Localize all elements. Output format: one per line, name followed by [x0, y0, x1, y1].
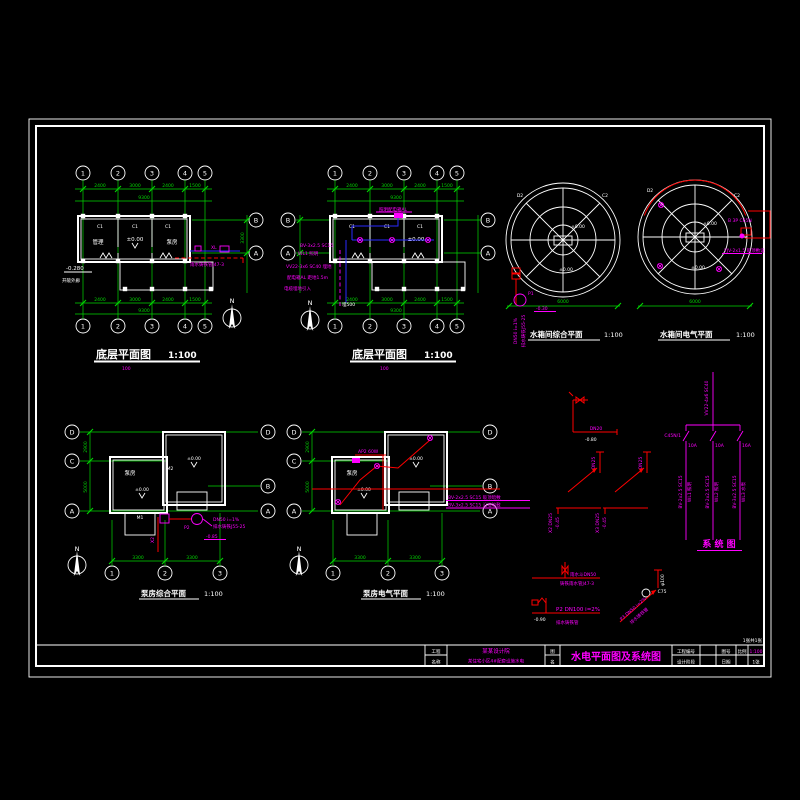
pipe-note: 铸铁雨水管J47-3: [560, 580, 594, 587]
grid-bubble-label: 2: [116, 323, 120, 331]
pipe-note: 排水铸铁J55-25: [520, 315, 527, 348]
pipe-note: 排水铸铁管: [556, 619, 579, 626]
panel-label: AP2 60W: [358, 449, 379, 455]
grid-bubble-label: 2: [163, 570, 167, 578]
window-tag: C1: [97, 224, 103, 230]
breaker-amps: 10A: [715, 443, 725, 449]
plan-scale: 1:100: [424, 351, 453, 361]
grid-bubble-label: C: [70, 458, 75, 466]
grid-bubble-label: 1: [110, 570, 114, 578]
grid-bubbles: D C A D B A 1 2 3: [287, 425, 497, 580]
lamp-icon: [716, 266, 721, 271]
grid-bubbles: D C A D B A 1 2 3: [65, 425, 275, 580]
dim-label: 3300: [354, 555, 366, 561]
dim-label: 2400: [414, 183, 426, 189]
dim-side: 5000: [305, 481, 311, 493]
pipe-note: P2 DN100 i=2%: [556, 607, 600, 613]
north-label: N: [230, 297, 235, 305]
grid-bubble-label: D: [487, 429, 492, 437]
dim-label: 1500: [441, 183, 453, 189]
tb-field-scale: 比例: [738, 648, 747, 655]
level-label: ±0.00: [703, 221, 717, 227]
breaker-amps: 10A: [688, 443, 698, 449]
breaker-note: B 3P C65N: [728, 218, 752, 224]
cable-note: YJV-2x1.5 吸顶敷设: [723, 247, 765, 254]
riser-note: -0.45: [555, 517, 561, 529]
grid-bubble-label: A: [266, 508, 271, 516]
grid-bubble-label: 5: [455, 170, 459, 178]
north-compass-icon: [68, 551, 86, 576]
circuit-load: WL2 照明: [714, 481, 720, 502]
north-compass-icon: [223, 304, 241, 329]
axis-tag: D2: [647, 188, 653, 194]
grid-bubble-label: 3: [150, 323, 154, 331]
room-label: 泵房: [124, 469, 136, 477]
dim-total: 9300: [390, 195, 402, 201]
grid-bubble-label: 5: [203, 170, 207, 178]
grid-bubble-label: 3: [440, 570, 444, 578]
window-tag: C1: [165, 224, 171, 230]
system-diagram: VV22-4x6 SC40 C45N/1 10A BV-2x2.5 SC15 W…: [664, 372, 751, 551]
dim-label: 2400: [162, 297, 174, 303]
grid-bubble-label: A: [70, 508, 75, 516]
building-outline: C1 C1 C1 管理 泵房 ±0.00 -0.280 开敞外廊: [62, 214, 213, 291]
riser-flag: DN25: [638, 457, 644, 470]
cad-canvas: 1张共1张 工程 名称 某某设计院 某住宅小区4#配套设施水电 图 名 水电平面…: [0, 0, 800, 800]
room-label: 泵房: [166, 238, 178, 246]
pipe-note: DN50 i=1%: [513, 317, 519, 344]
room-label: 管理: [92, 238, 104, 246]
grid-bubble-label: A: [488, 508, 493, 516]
grid-bubble-label: 1: [81, 170, 85, 178]
axis-tag: D2: [517, 193, 523, 199]
tb-label-project: 工程: [432, 648, 441, 655]
grid-bubble-label: C: [292, 458, 297, 466]
dim-label: 1500: [189, 297, 201, 303]
pipe-size: φ100: [660, 574, 666, 586]
level-label: ±0.00: [187, 456, 201, 462]
plan-title-text: 水箱间电气平面: [660, 329, 713, 339]
grid-bubble-label: A: [292, 508, 297, 516]
window-tag: C1: [417, 224, 423, 230]
grid-bubble-label: 2: [368, 170, 372, 178]
grid-lines: 2400 3000 2400 1500 9300 2400 3000 2400 …: [75, 180, 250, 319]
pipe-detail-riser-2: DN25 X3 DN25 -0.45: [595, 452, 651, 533]
tank-plan-plumbing: D2 C2 ±0.00 ±0.00 6000 P1 -0.30 DN50 i=1…: [506, 183, 623, 347]
pumphouse-plan-electrical: D C A D B A 1 2 3 2900 5000 3300 3300: [287, 425, 530, 599]
plumbing-annotations: X2 P2 DN50 i=1% 排水铸铁J55-25 -0.85: [150, 514, 246, 553]
pumphouse-plan-plumbing: D C A D B A 1 2 3 2900 5000 3300 3300: [65, 425, 275, 599]
dim-label: 3300: [409, 555, 421, 561]
grid-bubble-label: 2: [116, 170, 120, 178]
breaker-tag: C45N/1: [664, 433, 681, 439]
plan-title: 底层平面图 1:100 100: [350, 347, 456, 372]
circuit-wire-spec: BV-2x2.5 SC15: [678, 475, 684, 508]
grid-bubbles: 1 2 3 4 5 1 2 3 4 5 B A B A: [281, 166, 495, 333]
diagram-title-text: 系 统 图: [702, 538, 735, 550]
window-tag: C1: [384, 224, 390, 230]
title-block: 工程 名称 某某设计院 某住宅小区4#配套设施水电 图 名 水电平面图及系统图 …: [36, 645, 764, 666]
window-tag: C1: [132, 224, 138, 230]
level-label: ±0.00: [691, 265, 705, 271]
tb-label-tu: 图: [550, 649, 555, 655]
pipe-detail-diagonal: φ100 C75 P3 DN50 i=2% 排水铸铁管: [619, 570, 667, 626]
level-label: -0.80: [585, 437, 597, 443]
grid-bubble-label: 5: [203, 323, 207, 331]
grid-bubble-label: B: [486, 217, 490, 225]
north-compass-icon: [290, 551, 308, 576]
cable-note: BV-3x2.5 SC15 沿墙暗敷: [448, 502, 501, 509]
dim-label: 2400: [94, 183, 106, 189]
level-label: ±0.00: [357, 487, 371, 493]
tb-value-sheets: 1张: [752, 659, 760, 666]
electrical-wiring: AP2 60W BV-2x2.5 SC15 吸顶暗敷 BV-3x2.5 SC15…: [312, 435, 530, 510]
porch-label: 开敞外廊: [62, 277, 80, 284]
plan-scale: 1:100: [736, 331, 755, 339]
dim-label: 3000: [381, 297, 393, 303]
dim-label: 2400: [94, 297, 106, 303]
tb-value-scale: 1:100: [750, 649, 763, 655]
pipe-detail-valve: DN20 -0.80: [569, 392, 617, 443]
tb-field-projno: 工程编号: [677, 648, 695, 655]
lamp-icon: [335, 499, 340, 504]
grid-bubble-label: 4: [183, 170, 187, 178]
dim-side: 2900: [83, 441, 89, 453]
grid-bubble-label: D: [69, 429, 74, 437]
room-label: 泵房: [346, 469, 358, 477]
pipe-note: 雨水铸铁管J47-3: [190, 261, 224, 268]
dim-side: 3300: [240, 232, 246, 244]
plan-subnote: 100: [122, 366, 131, 372]
level-label: ±0.00: [559, 267, 573, 273]
grid-bubble-label: 1: [331, 570, 335, 578]
grid-bubble-label: B: [266, 483, 270, 491]
grid-bubble-label: D: [265, 429, 270, 437]
grid-bubble-label: 1: [333, 170, 337, 178]
axis-tag: C2: [734, 193, 740, 199]
plan-title-text: 水箱间综合平面: [530, 329, 583, 339]
cable-note: 电缆埋地引入: [284, 285, 311, 292]
tb-company-line1: 某某设计院: [482, 647, 510, 655]
tb-label-ming: 名: [550, 659, 555, 666]
plan-subnote: 100: [380, 366, 389, 372]
dim-label: 3000: [129, 183, 141, 189]
level-label: -0.90: [534, 617, 546, 623]
riser-note: X3 DN25: [595, 513, 601, 533]
plan-scale: 1:100: [604, 331, 623, 339]
cable-note: WL1 照明: [298, 251, 319, 257]
plan-title-text: 泵房电气平面: [363, 588, 408, 598]
tb-company-line2: 某住宅小区4#配套设施水电: [468, 658, 525, 665]
plan-title: 水箱间电气平面 1:100: [658, 329, 755, 340]
plan-title: 水箱间综合平面 1:100: [528, 329, 623, 340]
pump-tag: P1: [528, 291, 534, 297]
grid-bubble-label: B: [286, 217, 290, 225]
grid-bubble-label: 4: [435, 170, 439, 178]
tb-field-date: 日期: [722, 660, 731, 666]
pipe-note: DN20: [590, 426, 603, 432]
level-label: -0.280: [66, 266, 84, 272]
circuit-wire-spec: BV-2x2.5 SC15: [705, 475, 711, 508]
dim-label: 3000: [381, 183, 393, 189]
lamp-icon: [657, 263, 662, 268]
cable-note: BV-3x2.5 SC15: [300, 243, 333, 249]
tb-field-stage: 设计阶段: [677, 659, 695, 666]
plan-scale: 1:100: [204, 590, 223, 598]
dim-total: 9300: [138, 308, 150, 314]
grid-bubble-label: 1: [333, 323, 337, 331]
dim-label: 3000: [129, 297, 141, 303]
level-label: ±0.00: [135, 487, 149, 493]
dim-side: 5000: [83, 481, 89, 493]
dim-label: 6000: [689, 299, 701, 305]
grid-bubble-label: 4: [183, 323, 187, 331]
dim-label: 2400: [162, 183, 174, 189]
grid-lines: 2400 3000 2400 1500 9300 2400 3000 2400 …: [296, 180, 481, 319]
feeder-spec: VV22-4x6 SC40: [704, 380, 710, 415]
grid-bubbles: 1 2 3 4 5 1 2 3 4 5 B A: [76, 166, 263, 333]
pipe-note: 排水铸铁J55-25: [213, 523, 246, 530]
system-diagram-title: 系 统 图: [697, 538, 742, 551]
grid-bubble-label: A: [254, 250, 259, 258]
grid-bubble-label: 3: [402, 170, 406, 178]
grid-bubble-label: A: [286, 250, 291, 258]
grid-bubble-label: D: [291, 429, 296, 437]
riser-note: -0.45: [602, 517, 608, 529]
tb-label-project2: 名称: [432, 659, 441, 666]
level-label: ±0.00: [127, 237, 144, 243]
north-label: N: [308, 299, 313, 307]
tb-drawing-title: 水电平面图及系统图: [570, 650, 661, 663]
axis-tag: C2: [602, 193, 608, 199]
door-tag: M2: [167, 466, 174, 472]
grid-bubble-label: 5: [455, 323, 459, 331]
level-label: ±0.00: [571, 224, 585, 230]
pump-tag: P2: [184, 525, 190, 531]
building-outline: 泵房 ±0.00 ±0.00 M1 M2: [110, 432, 225, 535]
plan-title-text: 泵房综合平面: [141, 588, 186, 598]
circuit-load: WL1 照明: [687, 481, 693, 502]
grid-bubble-label: 2: [368, 323, 372, 331]
lamp-icon: [427, 435, 432, 440]
plan-scale: 1:100: [426, 590, 445, 598]
plan-title-text: 底层平面图: [352, 347, 407, 361]
grid-bubble-label: 3: [402, 323, 406, 331]
plan-title: 泵房电气平面 1:100: [361, 588, 445, 599]
dim-label: 2400: [346, 183, 358, 189]
grid-bubble-label: A: [486, 250, 491, 258]
plan-ground-plumbing: 1 2 3 4 5 1 2 3 4 5 B A: [62, 166, 263, 372]
tank-plan-electrical: D2 C2 ±0.00 ±0.00 B 3P C65N YJV-2x1.5 吸顶…: [637, 180, 770, 340]
door-tag: M1: [137, 515, 144, 521]
burial-note: 埋500: [342, 301, 355, 308]
pipe-note: 雨水斗DN50: [570, 571, 596, 578]
tb-field-drawno: 图号: [722, 649, 731, 655]
grid-bubble-label: 3: [218, 570, 222, 578]
riser-tag: X2: [150, 537, 156, 543]
building-outline: ±0.00 ±0.00 泵房: [332, 432, 447, 535]
riser-tag: XL: [211, 245, 217, 251]
plan-title: 泵房综合平面 1:100: [139, 588, 223, 599]
grid-lines: 2900 5000 3300 3300: [80, 429, 260, 566]
north-compass-icon: [301, 306, 319, 331]
cable-note: BV-2x2.5 SC15 吸顶暗敷: [448, 494, 501, 501]
plan-title: 底层平面图 1:100 100: [94, 347, 200, 372]
riser-note: X2 DN25: [548, 513, 554, 533]
plan-title-text: 底层平面图: [96, 347, 151, 361]
pages-note: 1张共1张: [743, 637, 763, 644]
dim-label: 3300: [132, 555, 144, 561]
dim-total: 9300: [390, 308, 402, 314]
dim-label: 6000: [557, 299, 569, 305]
plan-scale: 1:100: [168, 351, 197, 361]
plan-ground-electrical: 1 2 3 4 5 1 2 3 4 5 B A B A: [281, 166, 495, 372]
grid-bubble-label: 3: [150, 170, 154, 178]
dim-label: 3300: [186, 555, 198, 561]
grid-bubble-label: 2: [386, 570, 390, 578]
pipe-note: DN50 i=1%: [213, 517, 240, 523]
cable-note: 配电箱AL 距地1.5m: [287, 274, 328, 281]
dim-side: 2900: [305, 441, 311, 453]
pipe-detail-drain: P2 DN100 i=2% -0.90 排水铸铁管: [532, 598, 600, 626]
circuit-load: WL3 水泵: [740, 481, 747, 502]
dim-total: 9300: [138, 195, 150, 201]
dim-label: 1500: [441, 297, 453, 303]
grid-bubble-label: 1: [81, 323, 85, 331]
grid-bubble-label: 4: [435, 323, 439, 331]
pipe-detail-rainwater: 雨水斗DN50 铸铁雨水管J47-3: [532, 562, 600, 587]
dim-label: 2400: [414, 297, 426, 303]
riser-flag: DN25: [591, 457, 597, 470]
dim-label: 1500: [189, 183, 201, 189]
grid-bubble-label: B: [254, 217, 258, 225]
breaker-amps: 16A: [742, 443, 752, 449]
circuit-wire-spec: BV-3x2.5 SC15: [732, 475, 738, 508]
cable-note: VV22-3x6 SC40 埋地: [286, 263, 332, 270]
pipe-size: C75: [658, 589, 667, 595]
